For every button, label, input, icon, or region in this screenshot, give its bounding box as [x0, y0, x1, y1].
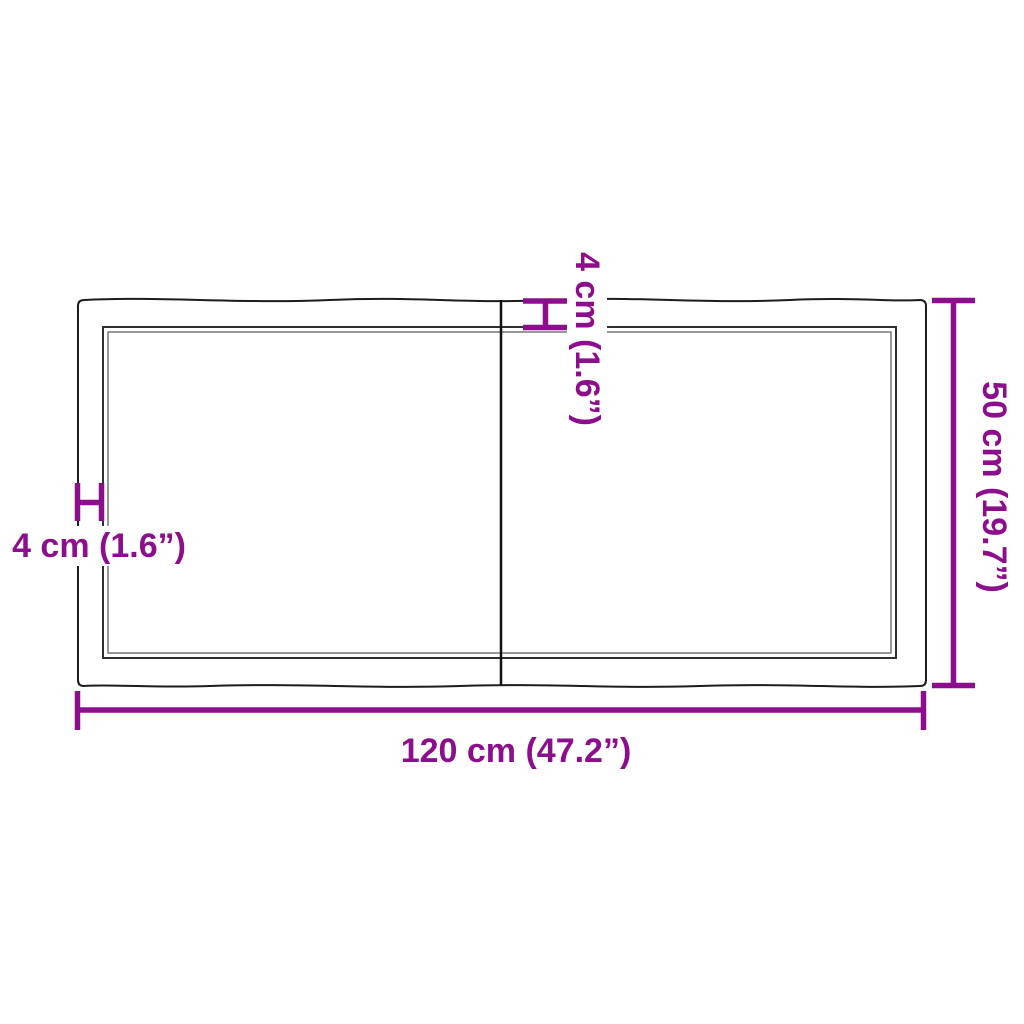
- height-dimension-label: 50 cm (19.7”): [977, 381, 1011, 593]
- width-dimension-label: 120 cm (47.2”): [401, 734, 632, 768]
- width-dimension-line: [77, 691, 924, 730]
- height-dimension-line: [932, 300, 975, 686]
- diagram-linework: [0, 0, 1024, 1024]
- left-thickness-label: 4 cm (1.6”): [7, 526, 191, 566]
- dimension-diagram: 120 cm (47.2”) 50 cm (19.7”) 4 cm (1.6”)…: [0, 0, 1024, 1024]
- top-thickness-label: 4 cm (1.6”): [567, 247, 607, 431]
- tabletop-top-view: [78, 299, 926, 687]
